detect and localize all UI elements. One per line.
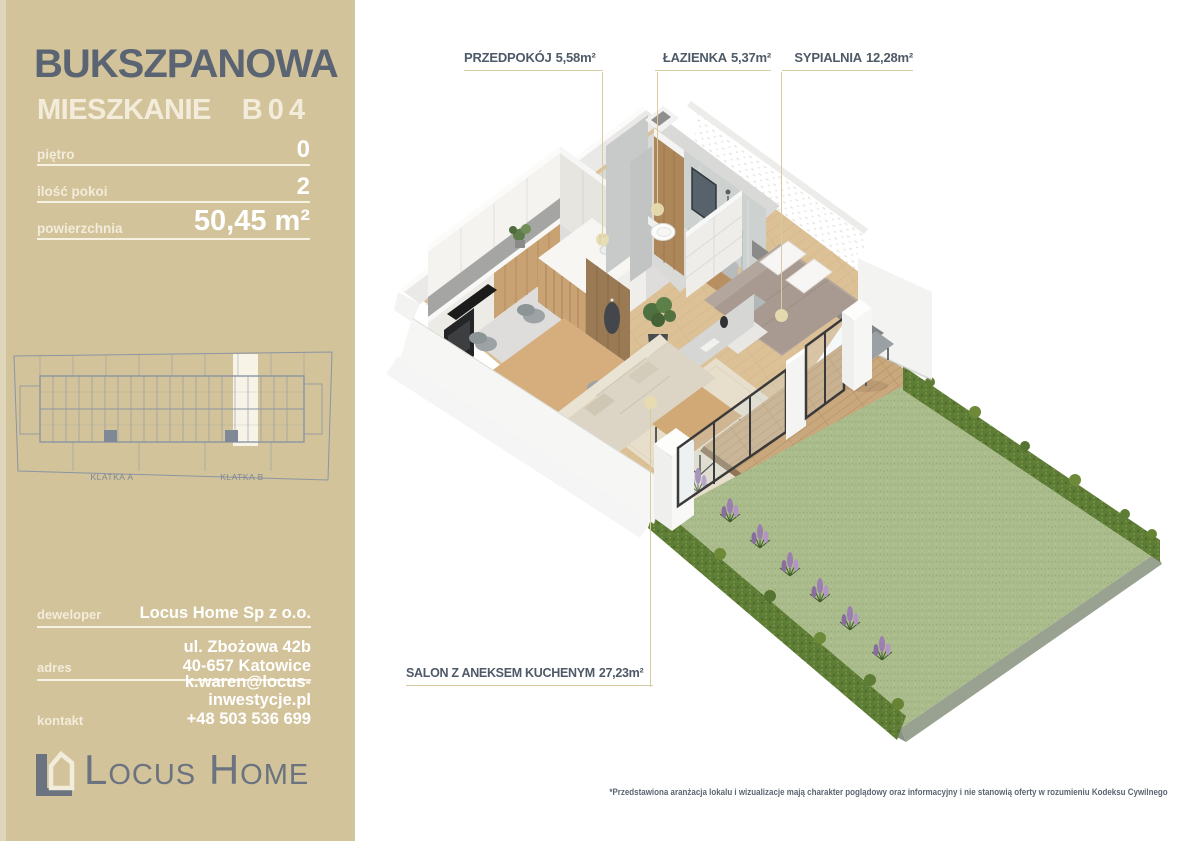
room-name: PRZEDPOKÓJ xyxy=(464,50,552,65)
spec-row-area: powierzchnia 50,45 m² xyxy=(37,203,310,240)
bath-left-wall xyxy=(630,146,652,282)
sidebar-edge-highlight xyxy=(0,0,6,841)
disclaimer-text: *Przedstawiona aranżacja lokalu i wizual… xyxy=(610,787,1168,798)
unit-code: B04 xyxy=(242,94,310,127)
label-przedpokoj: PRZEDPOKÓJ5,58m² xyxy=(464,50,603,71)
roof-lines xyxy=(40,353,304,376)
developer-name: Locus Home Sp z o.o. xyxy=(140,604,311,622)
spec-value: 50,45 m² xyxy=(194,208,310,236)
room-name: ŁAZIENKA xyxy=(663,50,727,65)
vase xyxy=(720,316,728,328)
contact-row-developer: deweloper Locus Home Sp z o.o. xyxy=(37,598,311,628)
spec-label: ilość pokoi xyxy=(37,184,108,199)
unit-subtitle: MIESZKANIE B04 xyxy=(37,94,310,127)
label-lazienka: ŁAZIENKA5,37m² xyxy=(655,50,771,71)
leader-line-salon xyxy=(650,402,651,687)
terrace-pillar xyxy=(842,299,872,391)
spec-value: 0 xyxy=(297,139,310,162)
label-salon: SALON Z ANEKSEM KUCHENYM27,23m² xyxy=(406,666,653,686)
stairwell-b-label: KLATKA B xyxy=(220,472,264,482)
leader-dot-salon xyxy=(644,396,657,409)
room-name: SYPIALNIA xyxy=(794,50,862,65)
flyer-page: PRZEDPOKÓJ5,58m² ŁAZIENKA5,37m² SYPIALNI… xyxy=(0,0,1190,841)
leader-dot-lazienka xyxy=(651,203,664,216)
leader-dot-przedpokoj xyxy=(596,233,609,246)
project-title: BUKSZPANOWA xyxy=(34,42,338,87)
spec-row-floor: piętro 0 xyxy=(37,129,310,166)
stairwell-a-marker xyxy=(104,430,117,442)
stairwell-b-marker xyxy=(225,430,238,442)
contact-email: k.waren@locus-inwestycje.pl xyxy=(185,673,311,709)
spec-list: piętro 0 ilość pokoi 2 powierzchnia 50,4… xyxy=(37,129,310,240)
building-diagram: KLATKA A KLATKA B xyxy=(12,350,345,486)
hanging-coat xyxy=(604,302,620,334)
house-icon xyxy=(34,744,78,798)
yard-lines xyxy=(73,442,271,471)
room-area: 5,58m² xyxy=(556,50,596,65)
address-lines: ul. Zbożowa 42b 40-657 Katowice xyxy=(183,638,311,675)
contact-label: kontakt xyxy=(37,713,83,728)
room-area: 27,23m² xyxy=(599,666,643,680)
stairwell-a-label: KLATKA A xyxy=(90,472,133,482)
unit-type: MIESZKANIE xyxy=(37,94,211,127)
contact-phone: +48 503 536 699 xyxy=(187,710,311,728)
info-sidebar: BUKSZPANOWA MIESZKANIE B04 piętro 0 iloś… xyxy=(0,0,355,841)
leader-dot-sypialnia xyxy=(775,309,788,322)
address-street: ul. Zbożowa 42b xyxy=(184,638,311,656)
contact-row-contact: kontakt k.waren@locus-inwestycje.pl +48 … xyxy=(37,686,311,728)
spec-row-rooms: ilość pokoi 2 xyxy=(37,166,310,203)
company-logo: Locus Home xyxy=(34,744,309,798)
room-name: SALON Z ANEKSEM KUCHENYM xyxy=(406,666,595,680)
spec-label: powierzchnia xyxy=(37,221,123,236)
logo-wordmark: Locus Home xyxy=(84,744,309,796)
leader-line-lazienka xyxy=(657,72,658,209)
wall-segment xyxy=(786,347,806,440)
contact-lines: k.waren@locus-inwestycje.pl +48 503 536 … xyxy=(83,673,311,728)
spec-label: piętro xyxy=(37,147,75,162)
leader-line-przedpokoj xyxy=(602,72,603,239)
floor-plan-render xyxy=(355,0,1190,841)
room-area: 12,28m² xyxy=(866,50,913,65)
label-sypialnia: SYPIALNIA12,28m² xyxy=(782,50,913,71)
contact-label: deweloper xyxy=(37,607,101,622)
contact-label: adres xyxy=(37,660,72,675)
plot-outline xyxy=(14,352,332,480)
room-area: 5,37m² xyxy=(731,50,771,65)
leader-line-sypialnia xyxy=(781,72,782,315)
spec-value: 2 xyxy=(297,176,310,199)
